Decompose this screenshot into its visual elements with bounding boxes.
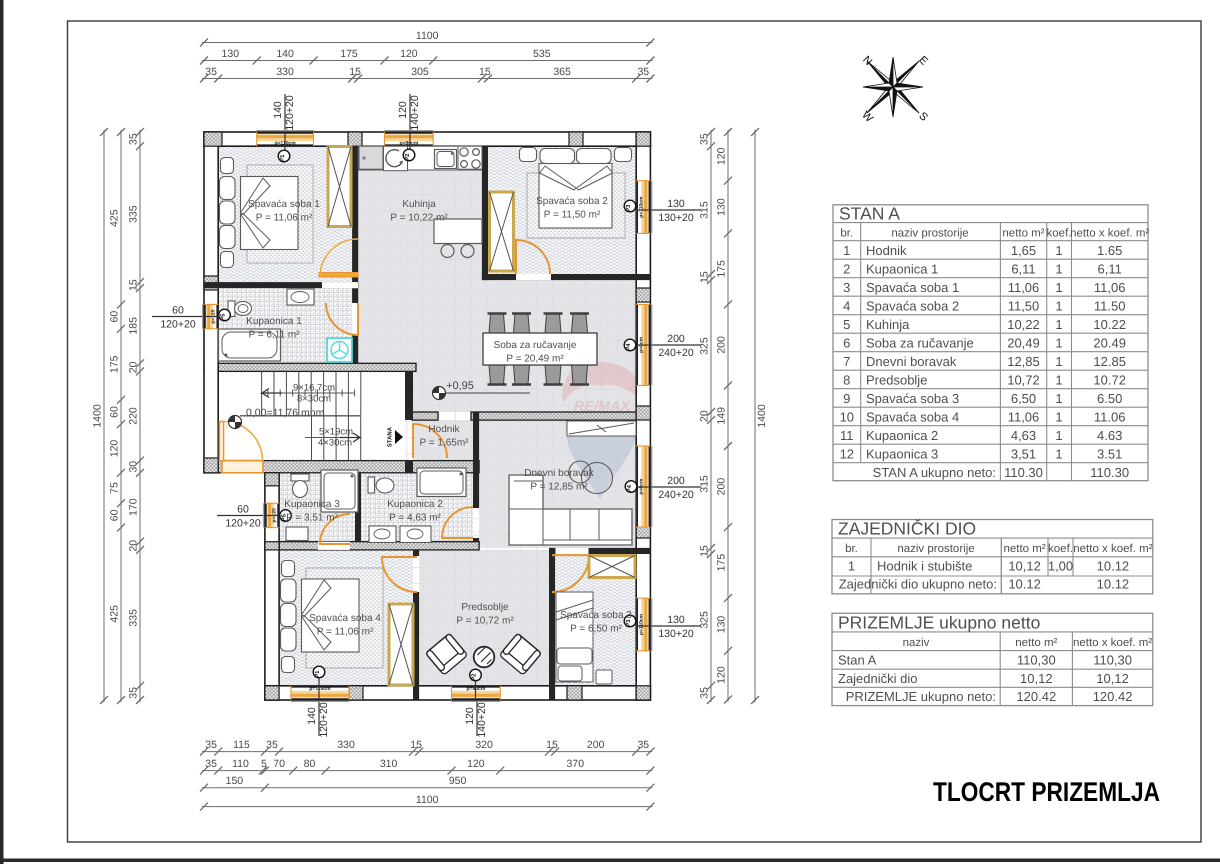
svg-text:1,00: 1,00: [1048, 559, 1073, 574]
svg-text:15: 15: [410, 739, 422, 751]
svg-text:10,12: 10,12: [1020, 671, 1053, 686]
svg-text:P = 11,06 m²: P = 11,06 m²: [256, 213, 313, 224]
svg-text:10,22: 10,22: [1007, 317, 1040, 332]
svg-text:Spavaća soba 1: Spavaća soba 1: [866, 280, 959, 295]
svg-text:5×19cm: 5×19cm: [319, 427, 353, 438]
svg-text:netto m²: netto m²: [1004, 543, 1046, 555]
svg-text:110,30: 110,30: [1093, 653, 1132, 668]
svg-text:35: 35: [637, 66, 649, 78]
svg-text:3: 3: [843, 280, 850, 295]
svg-text:1400: 1400: [756, 404, 768, 428]
svg-text:6.50: 6.50: [1097, 391, 1122, 406]
svg-text:35: 35: [637, 739, 649, 751]
svg-text:35: 35: [699, 133, 711, 145]
svg-text:15: 15: [349, 66, 361, 78]
svg-text:140+20: 140+20: [409, 95, 421, 130]
svg-text:315: 315: [699, 475, 711, 493]
svg-text:75: 75: [109, 482, 121, 494]
svg-text:Kupaonica 3: Kupaonica 3: [284, 499, 340, 510]
svg-text:Kuhinja: Kuhinja: [866, 317, 910, 332]
svg-text:20: 20: [128, 361, 140, 373]
svg-text:35: 35: [699, 687, 711, 699]
svg-text:20: 20: [128, 540, 140, 552]
svg-text:425: 425: [109, 605, 121, 623]
svg-text:130: 130: [222, 48, 240, 60]
svg-text:110.30: 110.30: [1004, 465, 1043, 480]
svg-text:10.12: 10.12: [1097, 559, 1130, 574]
svg-text:Predsoblje: Predsoblje: [866, 372, 927, 387]
svg-text:535: 535: [533, 48, 551, 60]
svg-text:naziv prostorije: naziv prostorije: [897, 543, 974, 555]
svg-text:P5: P5: [220, 313, 227, 321]
svg-text:120: 120: [467, 758, 485, 770]
svg-text:200: 200: [667, 475, 685, 487]
svg-text:10,12: 10,12: [1096, 671, 1129, 686]
svg-text:120: 120: [400, 48, 418, 60]
svg-text:240+20: 240+20: [658, 489, 693, 501]
svg-text:120: 120: [109, 440, 121, 458]
svg-text:P = 12,85 m²: P = 12,85 m²: [530, 482, 588, 493]
svg-text:2: 2: [843, 261, 850, 276]
svg-text:240+20: 240+20: [658, 347, 693, 359]
svg-text:6,11: 6,11: [1098, 261, 1122, 276]
svg-text:130: 130: [716, 198, 728, 216]
svg-text:+0,95: +0,95: [446, 380, 474, 392]
svg-text:175: 175: [716, 554, 728, 572]
svg-text:60: 60: [109, 509, 121, 521]
svg-text:Zajednički dio ukupno neto:: Zajednički dio ukupno neto:: [839, 577, 997, 592]
svg-text:5: 5: [843, 317, 850, 332]
svg-text:6: 6: [843, 335, 850, 350]
svg-text:11,06: 11,06: [1094, 280, 1126, 295]
svg-text:15: 15: [699, 271, 711, 283]
svg-text:120: 120: [716, 666, 728, 684]
svg-text:140: 140: [276, 48, 294, 60]
svg-text:ZAJEDNIČKI DIO: ZAJEDNIČKI DIO: [838, 519, 976, 539]
svg-text:8×30cm: 8×30cm: [297, 394, 331, 405]
svg-text:Spavaća soba 3: Spavaća soba 3: [560, 610, 632, 621]
svg-text:11.06: 11.06: [1094, 409, 1126, 424]
svg-text:185: 185: [128, 317, 140, 335]
svg-text:STAN A ukupno neto:: STAN A ukupno neto:: [873, 465, 996, 480]
svg-text:4,63: 4,63: [1011, 428, 1036, 443]
svg-text:P = 20,49 m²: P = 20,49 m²: [506, 354, 564, 365]
svg-text:120+20: 120+20: [284, 95, 296, 130]
svg-text:STANA: STANA: [387, 426, 394, 447]
svg-text:Hodnik: Hodnik: [428, 424, 460, 435]
svg-text:35: 35: [205, 66, 217, 78]
svg-text:Predsoblje: Predsoblje: [461, 602, 509, 613]
svg-text:1: 1: [1055, 335, 1062, 350]
svg-text:4.63: 4.63: [1097, 428, 1122, 443]
svg-text:60: 60: [109, 311, 121, 323]
svg-text:305: 305: [411, 66, 429, 78]
svg-text:1: 1: [1055, 409, 1062, 424]
svg-text:120+20: 120+20: [318, 702, 330, 737]
svg-text:10.12: 10.12: [1097, 577, 1130, 592]
svg-text:15: 15: [128, 279, 140, 291]
svg-text:netto x koef. m²: netto x koef. m²: [1073, 637, 1152, 649]
svg-text:koef.: koef.: [1047, 228, 1072, 240]
svg-text:Spavaća soba 1: Spavaća soba 1: [248, 199, 320, 210]
svg-text:TLOCRT PRIZEMLJA: TLOCRT PRIZEMLJA: [933, 777, 1160, 807]
svg-text:15: 15: [699, 545, 711, 557]
svg-text:p=0cm: p=0cm: [638, 478, 644, 495]
svg-text:1: 1: [1055, 243, 1062, 258]
svg-text:Soba za ručavanje: Soba za ručavanje: [494, 340, 577, 351]
svg-text:P1: P1: [279, 154, 286, 162]
svg-text:30: 30: [128, 461, 140, 473]
svg-text:70: 70: [273, 758, 285, 770]
svg-text:120+20: 120+20: [225, 518, 260, 530]
svg-text:Stan A: Stan A: [838, 653, 877, 668]
svg-text:Kupaonica 2: Kupaonica 2: [387, 499, 443, 510]
svg-text:6,11: 6,11: [1011, 261, 1035, 276]
svg-text:naziv: naziv: [903, 637, 930, 649]
svg-text:120.42: 120.42: [1016, 689, 1056, 704]
svg-text:Kupaonica 2: Kupaonica 2: [866, 428, 938, 443]
svg-text:12: 12: [840, 446, 854, 461]
svg-text:12,85: 12,85: [1007, 354, 1040, 369]
svg-text:120+20: 120+20: [160, 319, 195, 331]
svg-text:175: 175: [340, 48, 358, 60]
svg-text:Zajednički dio: Zajednički dio: [838, 671, 918, 686]
svg-text:Spavaća soba 4: Spavaća soba 4: [309, 613, 381, 624]
svg-text:130+20: 130+20: [658, 212, 693, 224]
svg-text:325: 325: [699, 337, 711, 355]
svg-text:P = 10,22 m²: P = 10,22 m²: [390, 213, 448, 224]
svg-text:425: 425: [109, 209, 121, 227]
svg-text:170: 170: [128, 498, 140, 516]
svg-text:P = 3,51 m²: P = 3,51 m²: [286, 513, 338, 524]
svg-text:Dnevni boravak: Dnevni boravak: [866, 354, 957, 369]
svg-text:0,00=11,76 mnm: 0,00=11,76 mnm: [246, 407, 325, 419]
svg-text:p=110cm: p=110cm: [638, 613, 644, 635]
svg-text:149: 149: [716, 407, 728, 425]
svg-text:20,49: 20,49: [1007, 335, 1040, 350]
svg-text:110: 110: [232, 758, 249, 770]
svg-text:1: 1: [1055, 446, 1062, 461]
svg-text:p=90cm: p=90cm: [467, 686, 486, 692]
svg-text:1: 1: [843, 243, 850, 258]
svg-text:175: 175: [716, 260, 728, 278]
svg-text:Spavaća soba 4: Spavaća soba 4: [866, 409, 959, 424]
svg-text:120: 120: [397, 101, 409, 119]
svg-text:10.22: 10.22: [1093, 317, 1126, 332]
svg-text:35: 35: [266, 739, 278, 751]
svg-text:1: 1: [1055, 317, 1062, 332]
svg-text:Kuhinja: Kuhinja: [402, 199, 436, 210]
svg-text:4×30cm: 4×30cm: [318, 438, 352, 449]
svg-text:7: 7: [843, 354, 850, 369]
svg-text:5: 5: [261, 758, 267, 770]
svg-text:20: 20: [699, 410, 711, 422]
svg-text:Dnevni boravak: Dnevni boravak: [524, 468, 594, 479]
svg-text:Kupaonica 3: Kupaonica 3: [866, 446, 938, 461]
svg-text:11,50: 11,50: [1008, 298, 1040, 313]
svg-text:STAN A: STAN A: [839, 204, 900, 224]
svg-text:365: 365: [553, 66, 571, 78]
svg-text:Kupaonica 1: Kupaonica 1: [246, 316, 302, 327]
svg-text:60: 60: [172, 305, 184, 317]
svg-text:35: 35: [205, 739, 217, 751]
svg-text:115: 115: [233, 739, 250, 751]
svg-text:3.51: 3.51: [1097, 446, 1122, 461]
svg-text:Soba za ručavanje: Soba za ručavanje: [866, 335, 974, 350]
svg-text:PRIZEMLJE ukupno netto: PRIZEMLJE ukupno netto: [838, 612, 1040, 632]
svg-text:35: 35: [128, 687, 140, 699]
svg-text:1.65: 1.65: [1097, 243, 1122, 258]
svg-text:320: 320: [475, 739, 493, 751]
svg-text:netto x koef. m²: netto x koef. m²: [1073, 543, 1152, 555]
svg-text:11,06: 11,06: [1008, 409, 1040, 424]
svg-text:130: 130: [716, 616, 728, 634]
svg-text:6,50: 6,50: [1011, 391, 1036, 406]
svg-text:1: 1: [1055, 372, 1062, 387]
svg-text:P = 11,06 m²: P = 11,06 m²: [317, 627, 374, 638]
svg-text:110,30: 110,30: [1017, 653, 1056, 668]
svg-text:1: 1: [1055, 354, 1062, 369]
svg-text:P2: P2: [404, 153, 411, 161]
svg-text:P = 10,72 m²: P = 10,72 m²: [456, 616, 514, 627]
svg-text:15: 15: [546, 739, 558, 751]
svg-text:br.: br.: [845, 543, 858, 555]
svg-text:335: 335: [128, 609, 140, 627]
svg-text:3,51: 3,51: [1011, 446, 1036, 461]
svg-text:60: 60: [109, 406, 121, 418]
svg-text:1: 1: [1055, 298, 1062, 313]
svg-text:220: 220: [128, 407, 140, 425]
svg-text:310: 310: [380, 758, 398, 770]
svg-text:175: 175: [109, 355, 121, 373]
svg-text:netto m²: netto m²: [1002, 228, 1044, 240]
svg-text:370: 370: [567, 758, 585, 770]
svg-text:20.49: 20.49: [1093, 335, 1126, 350]
svg-text:60: 60: [237, 504, 249, 516]
svg-text:P = 6,50 m²: P = 6,50 m²: [570, 624, 622, 635]
svg-text:120.42: 120.42: [1093, 689, 1133, 704]
svg-text:netto x koef. m²: netto x koef. m²: [1070, 228, 1149, 240]
svg-text:P = 11,50 m²: P = 11,50 m²: [544, 210, 601, 221]
svg-text:Spavaća soba 2: Spavaća soba 2: [866, 298, 959, 313]
svg-text:1100: 1100: [416, 794, 439, 806]
svg-text:140+20: 140+20: [476, 702, 488, 737]
svg-text:naziv prostorije: naziv prostorije: [891, 228, 968, 240]
svg-text:10,12: 10,12: [1008, 559, 1041, 574]
svg-text:PRIZEMLJE ukupno neto:: PRIZEMLJE ukupno neto:: [846, 689, 996, 704]
svg-text:P3: P3: [625, 204, 632, 212]
svg-text:1100: 1100: [416, 30, 439, 42]
svg-text:8: 8: [843, 372, 850, 387]
svg-text:140: 140: [306, 707, 318, 725]
svg-text:10.12: 10.12: [1008, 577, 1041, 592]
svg-text:netto m²: netto m²: [1015, 637, 1057, 649]
svg-text:1: 1: [848, 559, 855, 574]
svg-text:15: 15: [479, 66, 491, 78]
svg-text:Hodnik: Hodnik: [866, 243, 907, 258]
svg-text:120: 120: [716, 147, 728, 165]
svg-text:80: 80: [304, 758, 316, 770]
svg-text:130: 130: [667, 198, 685, 210]
svg-text:9×16,7cm: 9×16,7cm: [293, 383, 335, 394]
svg-text:11: 11: [840, 428, 854, 443]
svg-text:130+20: 130+20: [658, 628, 693, 640]
svg-text:950: 950: [449, 775, 467, 787]
svg-text:p=110cm: p=110cm: [309, 686, 331, 692]
svg-text:p=110cm: p=110cm: [638, 196, 644, 218]
svg-text:P = 6,11 m²: P = 6,11 m²: [248, 330, 300, 341]
svg-text:p=90cm: p=90cm: [400, 140, 419, 146]
svg-text:P4: P4: [626, 484, 633, 492]
svg-text:10,72: 10,72: [1007, 372, 1040, 387]
svg-text:200: 200: [716, 478, 728, 496]
svg-text:koef.: koef.: [1048, 543, 1073, 555]
svg-text:150: 150: [226, 775, 244, 787]
svg-text:330: 330: [276, 66, 294, 78]
svg-text:130: 130: [667, 614, 685, 626]
svg-text:Spavaća soba 3: Spavaća soba 3: [866, 391, 959, 406]
svg-text:P2: P2: [471, 673, 478, 681]
svg-text:Spavaća soba 2: Spavaća soba 2: [536, 196, 608, 207]
svg-text:Hodnik i stubište: Hodnik i stubište: [877, 559, 972, 574]
svg-text:200: 200: [716, 336, 728, 354]
svg-text:P4: P4: [625, 343, 632, 351]
svg-text:200: 200: [587, 739, 605, 751]
svg-text:1400: 1400: [92, 404, 104, 428]
svg-text:1: 1: [1055, 261, 1062, 276]
svg-text:35: 35: [205, 758, 217, 770]
svg-text:9: 9: [843, 391, 850, 406]
svg-text:1: 1: [1055, 280, 1062, 295]
svg-text:1: 1: [1055, 391, 1062, 406]
svg-text:11.50: 11.50: [1094, 298, 1126, 313]
svg-text:P = 1,65m²: P = 1,65m²: [419, 438, 469, 449]
svg-text:35: 35: [128, 133, 140, 145]
svg-text:1: 1: [1055, 428, 1062, 443]
svg-text:4: 4: [843, 298, 850, 313]
svg-text:12.85: 12.85: [1093, 354, 1126, 369]
svg-text:br.: br.: [840, 228, 853, 240]
svg-text:140: 140: [272, 101, 284, 119]
svg-text:Kupaonica 1: Kupaonica 1: [866, 261, 938, 276]
svg-text:P = 4,63 m²: P = 4,63 m²: [389, 513, 441, 524]
svg-text:P1: P1: [314, 670, 321, 678]
svg-text:330: 330: [337, 739, 355, 751]
svg-text:200: 200: [667, 333, 685, 345]
svg-text:335: 335: [128, 205, 140, 223]
svg-text:120: 120: [464, 707, 476, 725]
svg-text:10: 10: [840, 409, 854, 424]
svg-text:1,65: 1,65: [1011, 243, 1036, 258]
svg-text:11,06: 11,06: [1008, 280, 1040, 295]
svg-text:10.72: 10.72: [1093, 372, 1126, 387]
svg-text:110.30: 110.30: [1090, 465, 1129, 480]
